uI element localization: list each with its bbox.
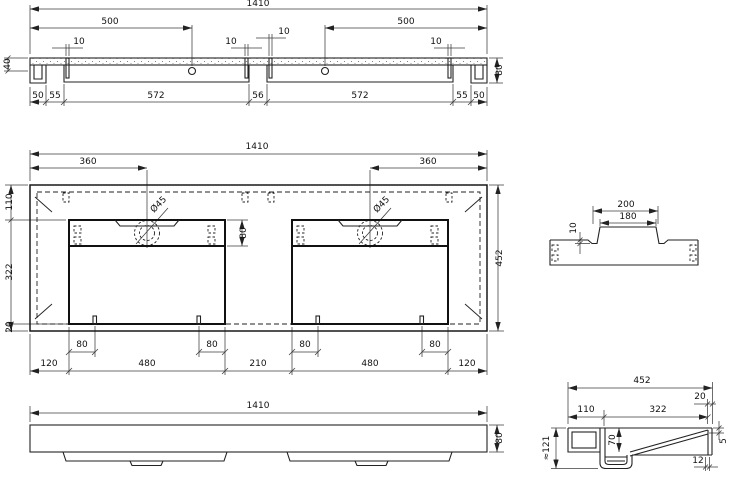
dim-top-chain-2: 55 [49, 91, 60, 101]
dim-top-chain-7: 50 [473, 91, 484, 101]
dim-side-front-edge: 20 [694, 392, 705, 402]
dim-top-chain-3: 572 [147, 91, 164, 101]
dim-top-slot-3: 10 [278, 27, 289, 37]
dim-plan-overall: 1410 [246, 142, 269, 152]
dim-side-back: 110 [577, 405, 594, 415]
dim-top-height-left: 40 [3, 58, 13, 69]
dim-top-slot-4: 10 [430, 37, 441, 47]
dim-top-chain-6: 55 [456, 91, 467, 101]
dim-top-hole-left: 500 [101, 17, 118, 27]
dim-plan-offset-1: 80 [76, 340, 87, 350]
dim-plan-vchain-3: 20 [5, 321, 15, 332]
dim-top-chain-5: 572 [351, 91, 368, 101]
dim-plan-vchain-2: 322 [5, 263, 15, 280]
front-view [30, 406, 504, 466]
dim-top-hole-right: 500 [397, 17, 414, 27]
dim-plan-offset-3: 80 [299, 340, 310, 350]
dim-plan-strip-height: 80 [239, 227, 249, 238]
technical-drawing-canvas [0, 0, 737, 477]
dim-top-chain-4: 56 [252, 91, 263, 101]
dim-side-span: 322 [649, 405, 666, 415]
dim-top-height-right: 80 [495, 64, 505, 75]
dim-top-overall: 1410 [247, 0, 270, 9]
dim-plan-chain-1: 120 [40, 359, 57, 369]
dim-front-height: 80 [495, 432, 505, 443]
dim-plan-chain-3: 210 [249, 359, 266, 369]
drawing-sheet: 1410 500 500 10 10 10 10 40 80 50 55 572… [0, 0, 737, 477]
dim-deck-outer: 200 [617, 200, 634, 210]
dim-deck-step: 10 [569, 222, 579, 233]
dim-side-wall: 12 [692, 456, 703, 466]
dim-top-slot-1: 10 [73, 37, 84, 47]
dim-plan-offset-4: 80 [429, 340, 440, 350]
dim-side-total-height: ≈121 [542, 436, 552, 461]
dim-side-basin-depth: 70 [608, 434, 618, 445]
dim-plan-chain-2: 480 [138, 359, 155, 369]
dim-top-chain-1: 50 [32, 91, 43, 101]
dim-plan-chain-4: 480 [361, 359, 378, 369]
dim-plan-hole-left: 360 [79, 157, 96, 167]
dim-side-lip: 5 [719, 438, 729, 444]
dim-top-slot-2: 10 [225, 37, 236, 47]
dim-deck-inner: 180 [619, 212, 636, 222]
dim-plan-depth: 452 [495, 249, 505, 266]
dim-side-depth: 452 [633, 376, 650, 386]
dim-plan-chain-5: 120 [458, 359, 475, 369]
dim-plan-offset-2: 80 [206, 340, 217, 350]
dim-plan-vchain-1: 110 [5, 193, 15, 210]
dim-front-overall: 1410 [247, 401, 270, 411]
dim-plan-hole-right: 360 [419, 157, 436, 167]
